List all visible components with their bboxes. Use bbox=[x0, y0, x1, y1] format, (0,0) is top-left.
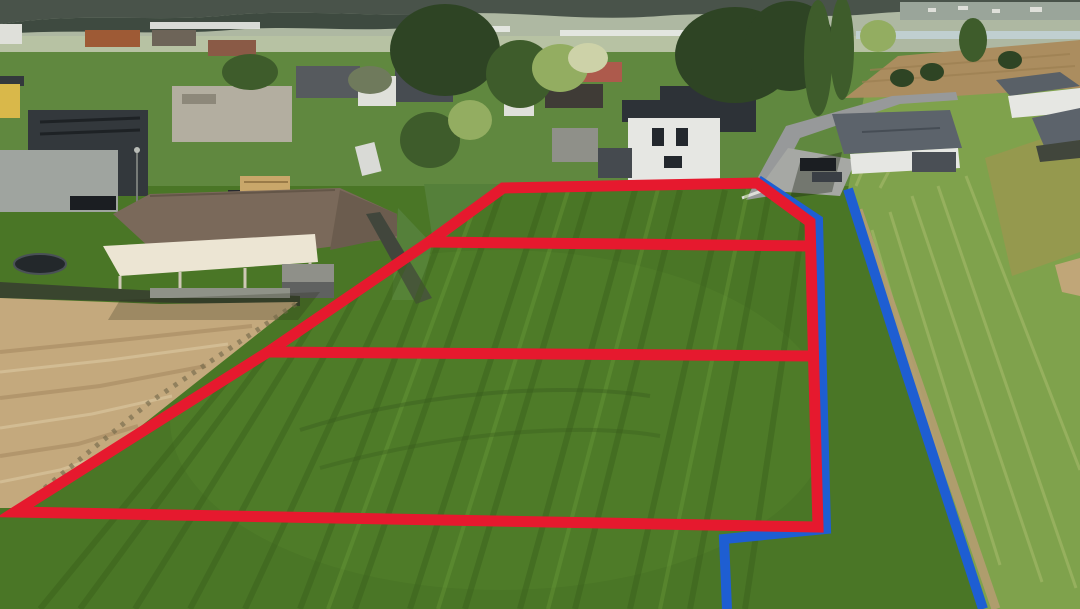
conifer-cluster bbox=[390, 4, 500, 96]
garden-tree bbox=[448, 100, 492, 140]
beige-house-dormer bbox=[182, 94, 216, 104]
bungalow-garage bbox=[912, 152, 956, 172]
small-roof bbox=[152, 30, 196, 46]
yellow-green-tree bbox=[860, 20, 896, 52]
orange-roof-house bbox=[85, 30, 140, 47]
hedge-tree bbox=[920, 63, 944, 81]
parked-car bbox=[800, 158, 836, 171]
greenhouse bbox=[560, 30, 700, 36]
garden-hut bbox=[282, 264, 334, 284]
tree bbox=[222, 54, 278, 90]
parked-car bbox=[70, 196, 116, 210]
distant-house bbox=[958, 6, 968, 10]
bungalow-roof bbox=[832, 110, 962, 154]
small-roof bbox=[208, 40, 256, 56]
red-divider-lower bbox=[268, 352, 816, 356]
house-far-left bbox=[0, 24, 22, 44]
street-lamp-head bbox=[134, 147, 140, 153]
annex-roof bbox=[598, 148, 632, 178]
window bbox=[664, 156, 682, 168]
distant-house bbox=[992, 9, 1000, 13]
window bbox=[676, 128, 688, 146]
greenhouse bbox=[150, 22, 260, 29]
garden-shed bbox=[552, 128, 598, 162]
hedge-tree bbox=[890, 69, 914, 87]
lone-tree bbox=[959, 18, 987, 62]
white-two-story-house bbox=[628, 118, 720, 180]
red-divider-upper bbox=[429, 242, 812, 246]
screenshot-root bbox=[0, 0, 1080, 609]
trampoline bbox=[14, 254, 66, 274]
lumber-stack bbox=[240, 176, 290, 192]
bare-tree bbox=[348, 66, 392, 94]
poplar bbox=[830, 0, 854, 100]
blossom-tree bbox=[568, 43, 608, 73]
distant-house bbox=[928, 8, 936, 12]
hedge-tree bbox=[998, 51, 1022, 69]
yellow-house bbox=[0, 84, 20, 118]
aerial-photo bbox=[0, 0, 1080, 609]
parked-car bbox=[812, 172, 842, 182]
poplar bbox=[804, 0, 832, 116]
distant-village bbox=[900, 2, 1080, 20]
window bbox=[652, 128, 664, 146]
distant-house bbox=[1030, 7, 1042, 12]
